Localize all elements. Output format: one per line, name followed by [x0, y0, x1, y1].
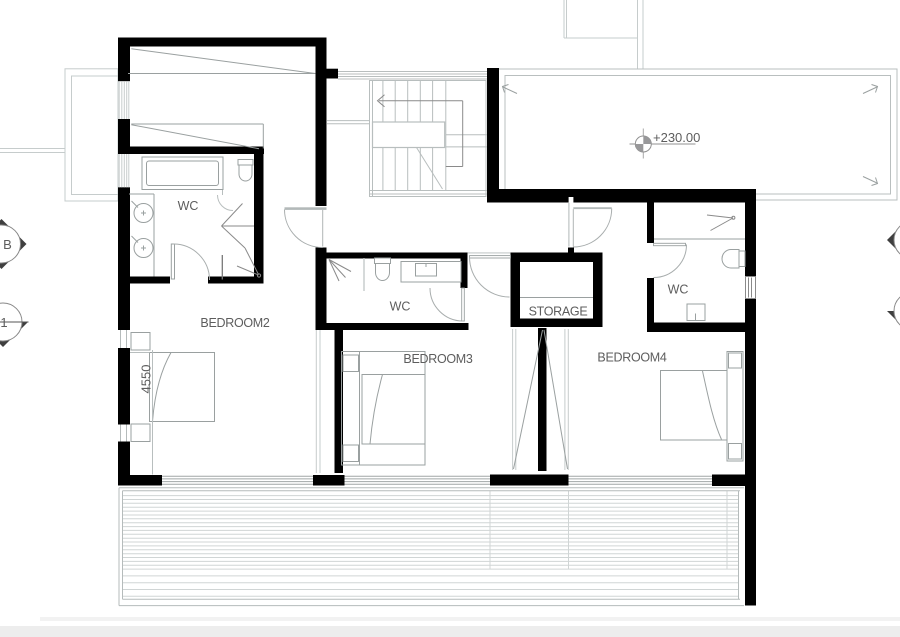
svg-text:+230.00: +230.00	[653, 130, 700, 145]
svg-text:4550: 4550	[139, 365, 154, 394]
svg-text:BEDROOM3: BEDROOM3	[403, 352, 472, 366]
svg-text:WC: WC	[178, 199, 199, 213]
svg-text:BEDROOM4: BEDROOM4	[597, 351, 666, 365]
svg-text:STORAGE: STORAGE	[529, 305, 588, 319]
svg-text:BEDROOM2: BEDROOM2	[200, 316, 269, 330]
svg-text:WC: WC	[668, 283, 689, 297]
svg-text:B: B	[3, 237, 12, 252]
svg-text:WC: WC	[390, 300, 411, 314]
svg-text:1: 1	[0, 315, 7, 330]
